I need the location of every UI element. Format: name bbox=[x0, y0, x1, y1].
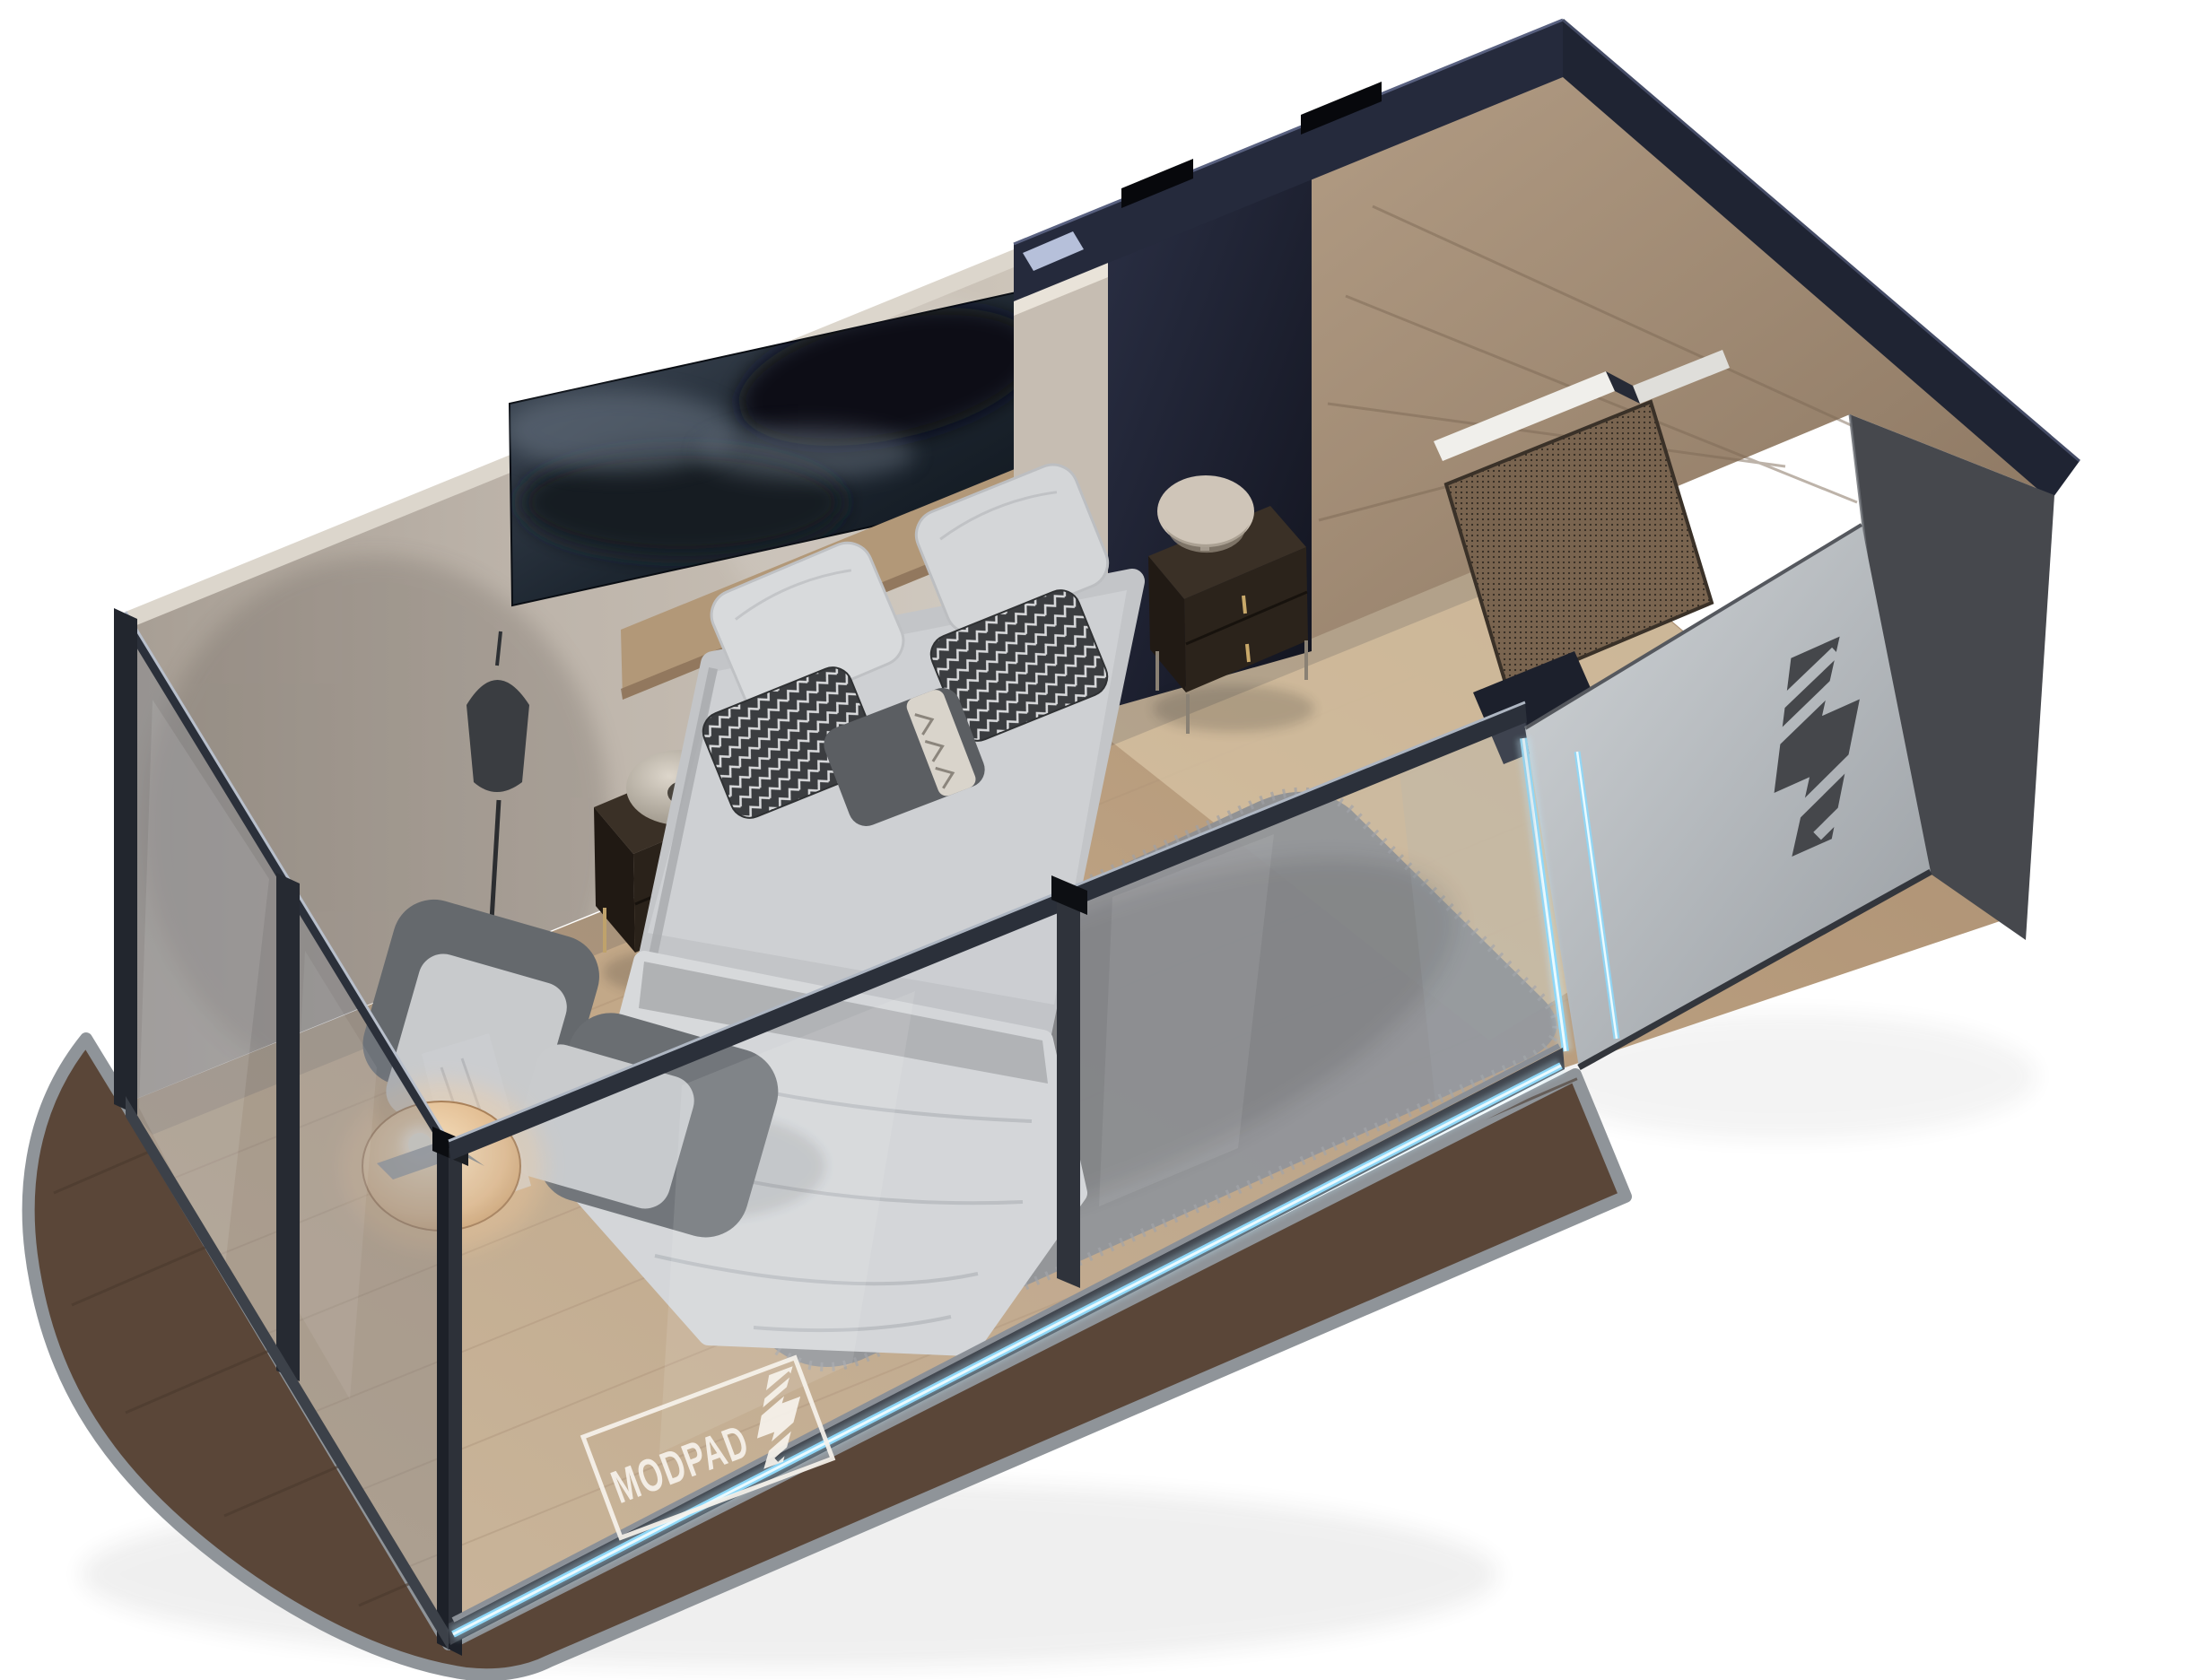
render-canvas: MODPAD bbox=[0, 0, 2189, 1680]
drawer-pull bbox=[1243, 596, 1245, 614]
lamp-shade bbox=[467, 680, 529, 792]
glass-post-mid bbox=[1057, 886, 1080, 1288]
glass-post-corner bbox=[114, 608, 137, 1115]
pod-isometric-render: MODPAD bbox=[0, 0, 2189, 1680]
drawer-pull bbox=[1247, 644, 1249, 662]
glass-post-mid bbox=[276, 873, 300, 1381]
